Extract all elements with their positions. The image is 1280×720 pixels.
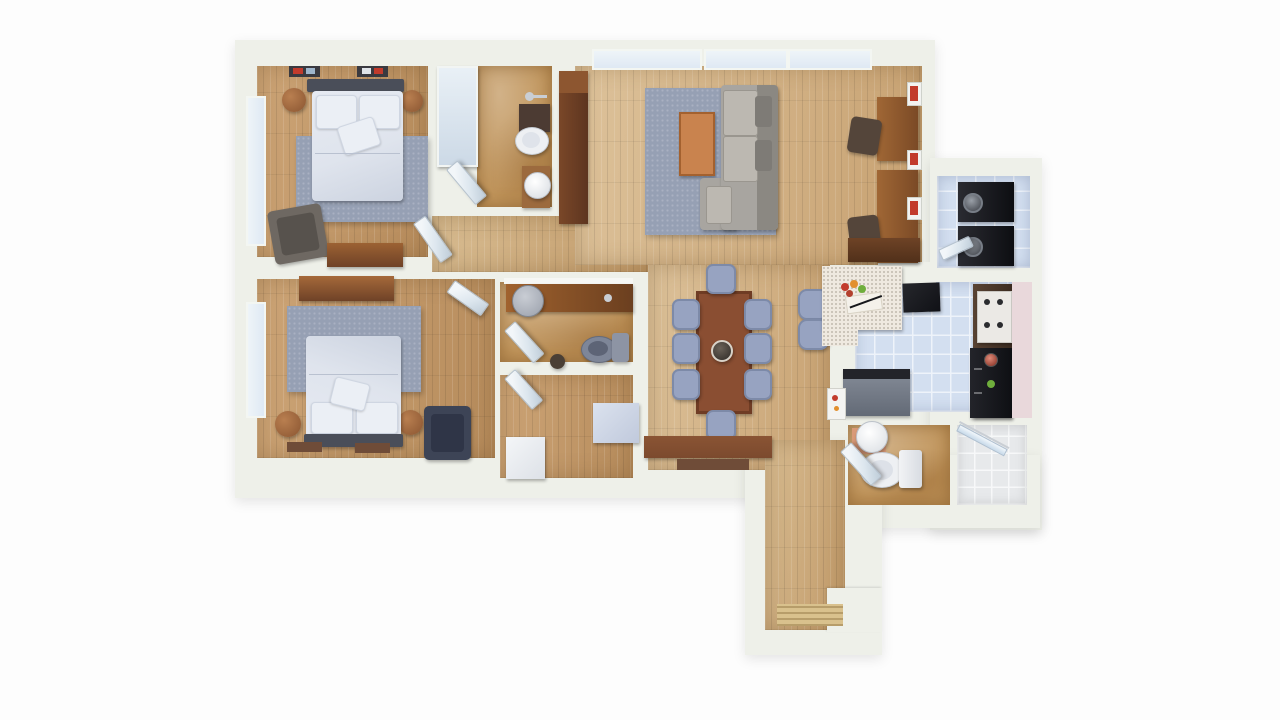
dining-chair — [744, 333, 772, 364]
bedroom2-window — [246, 302, 266, 418]
fruit — [846, 290, 853, 297]
living-window-1 — [592, 49, 702, 70]
storage-white-hamper — [506, 437, 545, 479]
wall-red-unit — [907, 82, 922, 106]
kitchen-pink-wall — [1012, 282, 1032, 418]
living-wardrobe — [559, 71, 588, 224]
dining-chair — [706, 264, 736, 294]
bedroom1-bed — [312, 91, 403, 201]
cooktop-white — [977, 291, 1012, 343]
bathroom3-toilet-tank — [899, 450, 922, 488]
dining-chair — [672, 299, 700, 330]
storage-blue-box — [593, 403, 639, 443]
dining-chair — [672, 333, 700, 364]
sofa-ottoman — [706, 186, 732, 224]
bathroom1-round-sink — [524, 172, 551, 199]
kitchen-wall-tv — [903, 282, 941, 312]
stacked-washer — [958, 182, 1014, 222]
desk-chair — [846, 116, 882, 156]
bathroom2-sink — [512, 285, 544, 317]
wall-red-unit — [907, 197, 922, 220]
bathroom1-faucet-bar — [532, 95, 547, 98]
bedroom2-dresser — [299, 276, 394, 301]
bedroom1-nightstand-left — [282, 88, 306, 112]
bathroom2-faucet — [604, 294, 612, 302]
wall-red-unit — [907, 150, 922, 170]
coffee-table — [679, 112, 715, 176]
bedroom2-armchair — [424, 406, 471, 460]
dining-door-mat — [677, 459, 749, 470]
bedroom2-nightstand-right — [398, 410, 423, 435]
wall-art-frame — [357, 66, 388, 77]
bedroom1-nightstand-right — [401, 90, 423, 112]
floor-plan-render — [0, 0, 1280, 720]
bedroom2-nightstand-left — [275, 411, 301, 437]
fruit — [850, 280, 858, 288]
kitchen-island — [843, 369, 910, 416]
bedroom1-window — [246, 96, 266, 246]
oven-black — [970, 348, 1012, 418]
bathroom1-toilet — [515, 127, 549, 155]
sofa-pillow — [755, 96, 772, 127]
living-window-3 — [788, 49, 872, 70]
kitchen-peninsula-counter — [822, 326, 858, 346]
centerpiece-bowl — [711, 340, 733, 362]
wall-art-frame — [289, 66, 320, 77]
bedroom1-armchair — [267, 203, 330, 266]
bathroom2-stool — [550, 354, 565, 369]
bedside-mat — [355, 443, 390, 453]
dining-chair — [744, 299, 772, 330]
bedroom1-dresser — [327, 243, 403, 267]
dining-chair — [672, 369, 700, 400]
fruit — [858, 285, 866, 293]
bedroom2-bed — [306, 336, 401, 438]
sofa-seat-cushion — [723, 136, 758, 182]
living-window-2 — [704, 49, 788, 70]
closet-sliding-panel — [437, 66, 478, 167]
bathroom2-toilet-tank — [612, 333, 629, 362]
bathroom3-sink — [856, 421, 888, 453]
sofa-seat-cushion — [723, 90, 758, 136]
bedside-mat — [287, 442, 322, 452]
dining-chair — [744, 369, 772, 400]
kitchen-wall-art — [827, 388, 846, 420]
sideboard — [644, 436, 772, 458]
sofa-pillow — [755, 140, 772, 171]
entry-door-mat — [777, 604, 843, 626]
kitchen-upper-cabinet — [848, 238, 920, 262]
